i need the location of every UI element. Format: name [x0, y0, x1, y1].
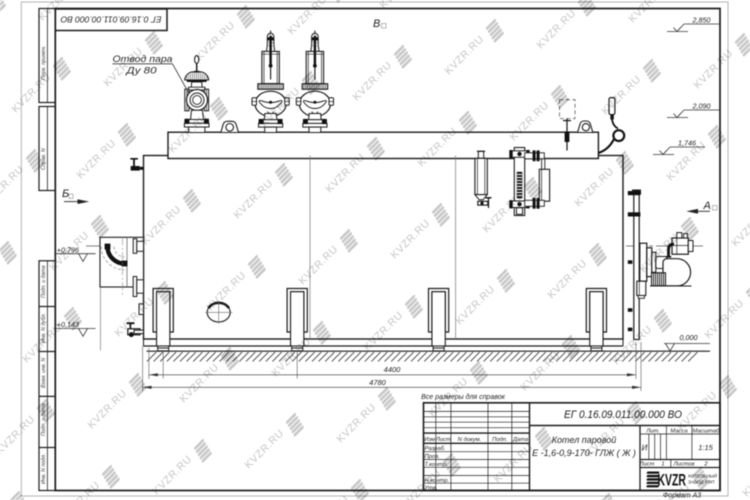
- svg-text:Изм: Изм: [424, 437, 435, 443]
- svg-text:4400: 4400: [384, 365, 402, 374]
- svg-text:Лист: Лист: [639, 462, 655, 468]
- svg-text:2,850: 2,850: [692, 15, 711, 24]
- svg-text:Разраб.: Разраб.: [425, 446, 446, 452]
- svg-text:Взам. инв. N: Взам. инв. N: [41, 358, 47, 388]
- svg-text:4780: 4780: [369, 378, 387, 387]
- svg-text:Подп. и дата: Подп. и дата: [41, 265, 47, 298]
- svg-text:Масштаб: Масштаб: [692, 428, 720, 434]
- svg-text:Б: Б: [62, 188, 69, 200]
- svg-text:1: 1: [661, 462, 664, 468]
- svg-text:Все размеры для справок: Все размеры для справок: [421, 393, 506, 401]
- svg-text:2: 2: [703, 462, 708, 468]
- svg-text:Лит.: Лит.: [645, 428, 660, 434]
- svg-text:Подп.: Подп.: [492, 437, 507, 443]
- svg-text:N докум.: N докум.: [458, 437, 481, 443]
- svg-text:0,000: 0,000: [680, 333, 698, 342]
- svg-text:Листов: Листов: [672, 462, 694, 468]
- svg-text:ЕГ 0.16.09.011.00.000 ВО: ЕГ 0.16.09.011.00.000 ВО: [60, 15, 161, 25]
- svg-text:В: В: [373, 18, 380, 30]
- svg-text:Пров.: Пров.: [425, 454, 440, 460]
- svg-text:А: А: [703, 200, 711, 212]
- svg-text:И: И: [642, 444, 648, 453]
- svg-text:Лист: Лист: [435, 437, 451, 443]
- svg-text:1:15: 1:15: [698, 443, 713, 452]
- svg-text:Инв. N подл.: Инв. N подл.: [41, 454, 47, 484]
- svg-text:Справ. N: Справ. N: [41, 148, 47, 170]
- svg-text:2,090: 2,090: [692, 101, 711, 110]
- svg-text:ЕГ 0.16.09.011.00.000 ВО: ЕГ 0.16.09.011.00.000 ВО: [564, 409, 683, 421]
